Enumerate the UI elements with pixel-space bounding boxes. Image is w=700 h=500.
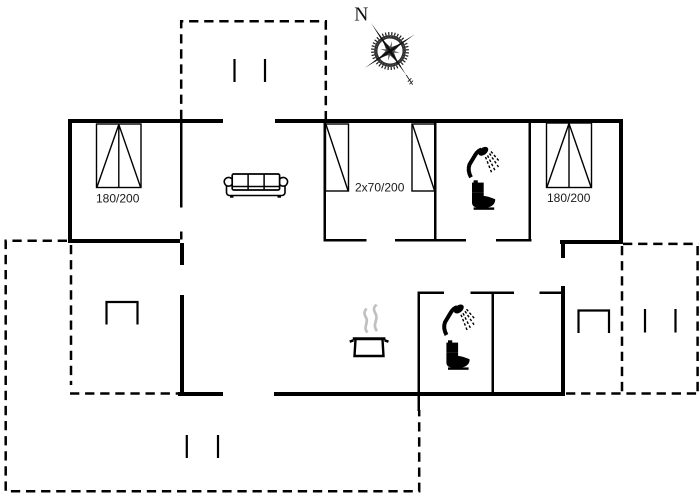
svg-text:N: N (354, 4, 368, 25)
svg-text:180/200: 180/200 (547, 191, 591, 205)
svg-text:180/200: 180/200 (96, 192, 140, 206)
svg-text:2x70/200: 2x70/200 (355, 181, 405, 195)
